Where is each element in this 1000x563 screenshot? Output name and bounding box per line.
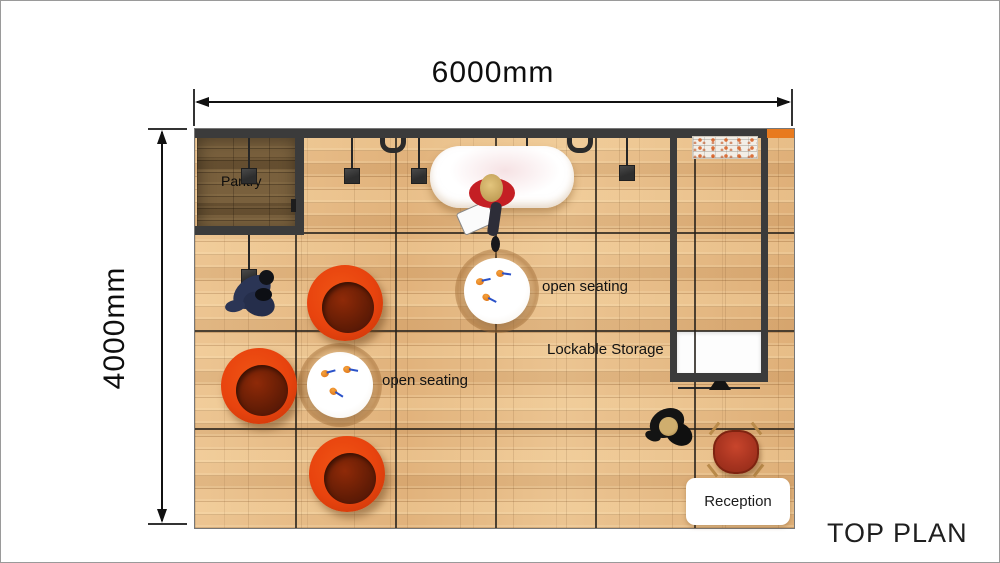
light-stem (351, 138, 353, 169)
tick-line-top (148, 128, 187, 130)
visitor-person (225, 262, 287, 326)
display-stand-icon (709, 381, 731, 390)
lounge-chair (221, 348, 297, 424)
ceiling-light-icon (344, 168, 360, 184)
storage-wall-right (761, 138, 768, 382)
pantry-wall-bottom (195, 226, 304, 235)
light-stem (626, 138, 628, 166)
guest-person (641, 397, 703, 459)
open-seating-label-center: open seating (542, 278, 628, 295)
brick-accent-panel (692, 136, 758, 159)
table-item (495, 269, 505, 278)
chair-seat (322, 282, 374, 333)
arrowhead-right-icon (777, 97, 791, 107)
lounge-chair (309, 436, 385, 512)
person-head (259, 270, 274, 285)
round-table (307, 352, 373, 418)
reception-chair (709, 421, 763, 477)
arrowhead-left-icon (195, 97, 209, 107)
pantry-door-handle (291, 199, 296, 212)
height-dimension-label: 4000mm (98, 228, 130, 428)
table-item (475, 277, 485, 287)
pantry-wall-right (295, 129, 304, 235)
top-plan-canvas: 6000mm 4000mm Pantry (0, 0, 1000, 563)
height-dimension-line (161, 132, 163, 521)
table-item (481, 292, 493, 303)
arrowhead-down-icon (157, 509, 167, 523)
grid-line-vertical (595, 138, 597, 528)
ceiling-light-icon (411, 168, 427, 184)
table-item (342, 365, 352, 374)
ceiling-light-icon (619, 165, 635, 181)
table-item (320, 369, 331, 379)
person-arm (224, 298, 246, 313)
grid-line-vertical (694, 138, 696, 528)
extension-line-left (193, 89, 195, 126)
tick-line-bottom (148, 523, 187, 525)
storage-desk (677, 331, 761, 373)
arrowhead-up-icon (157, 130, 167, 144)
chair-seat (713, 430, 759, 474)
lockable-storage-label: Lockable Storage (547, 341, 664, 358)
extension-line-right (791, 89, 793, 126)
person-bag (255, 288, 272, 301)
open-seating-label-left: open seating (382, 372, 468, 389)
light-stem (248, 138, 250, 169)
ceiling-light-icon (241, 168, 257, 184)
chair-seat (236, 365, 288, 416)
grid-line-horizontal (195, 428, 794, 430)
reception-label: Reception (704, 493, 772, 510)
floor-plan: Pantry (194, 128, 795, 529)
lounge-chair (307, 265, 383, 341)
page-title: TOP PLAN (827, 518, 968, 549)
table-item (328, 386, 340, 398)
staff-person (467, 174, 519, 256)
chair-leg (751, 422, 763, 436)
person-shoe (491, 236, 500, 252)
chair-seat (324, 453, 376, 504)
width-dimension-line (197, 101, 789, 103)
accent-wall-orange (767, 129, 794, 138)
person-hair (480, 174, 503, 202)
light-stem (418, 138, 420, 169)
person-head (659, 417, 678, 436)
grid-line-vertical (395, 138, 397, 528)
width-dimension-label: 6000mm (194, 56, 792, 90)
storage-wall-left (670, 138, 677, 382)
chair-leg (709, 422, 721, 436)
round-table (464, 258, 530, 324)
reception-sign: Reception (686, 478, 790, 525)
